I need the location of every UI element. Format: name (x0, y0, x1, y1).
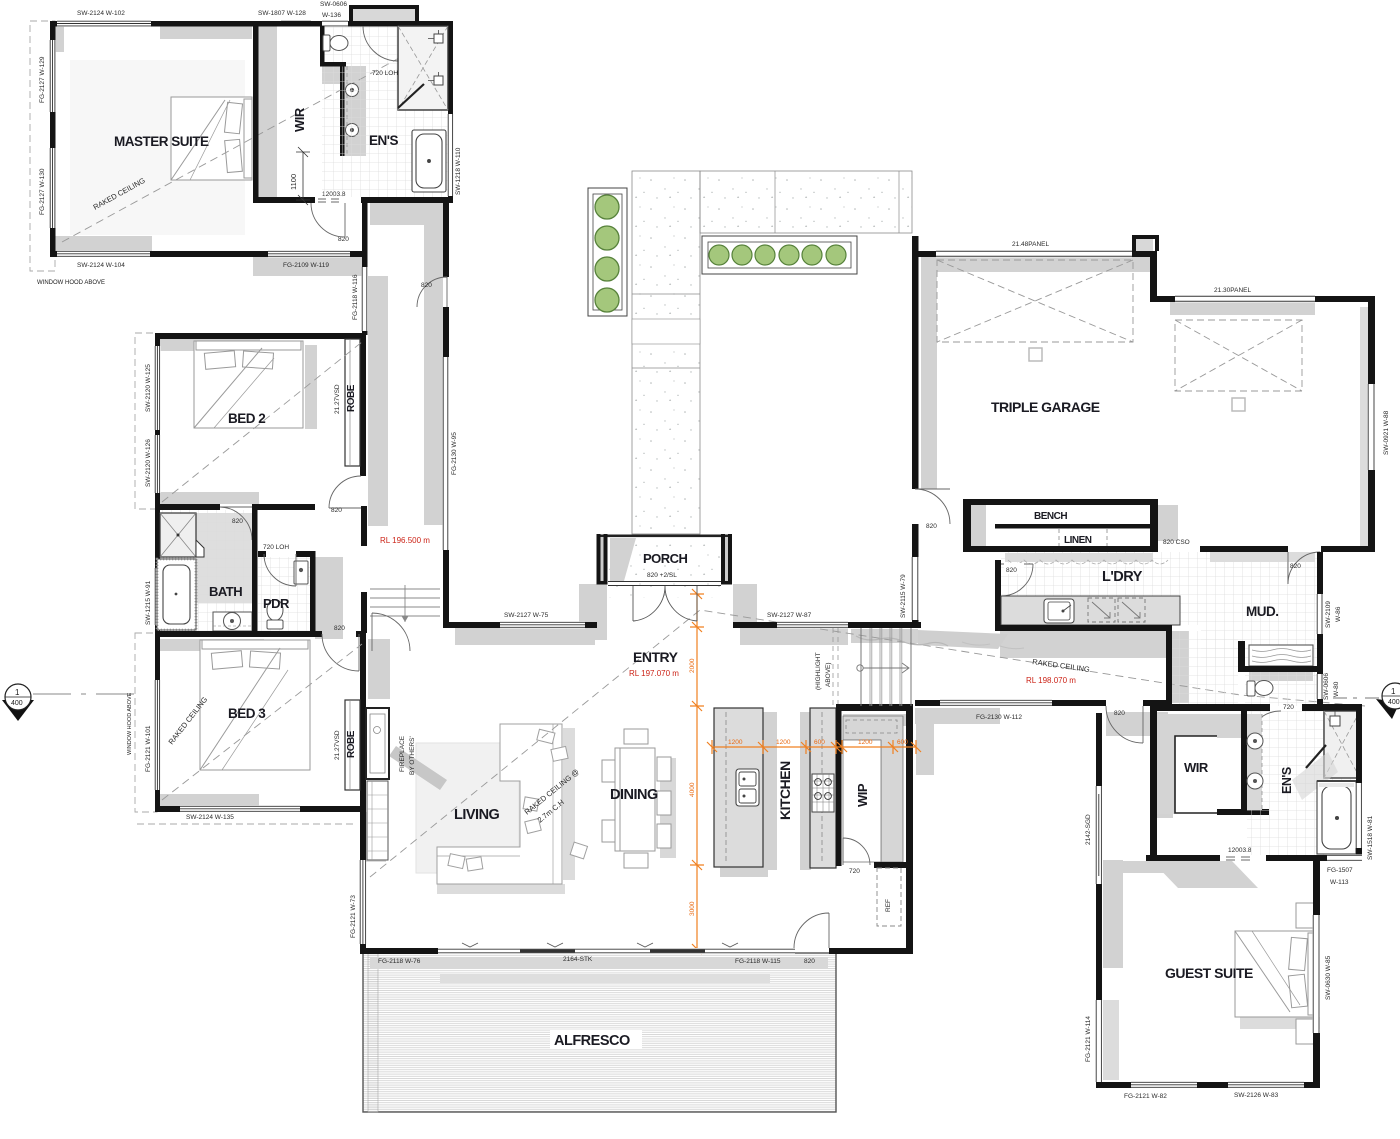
svg-text:FG-2121 W-101: FG-2121 W-101 (145, 725, 152, 772)
svg-text:820: 820 (804, 958, 815, 965)
svg-text:3000: 3000 (689, 901, 696, 916)
svg-text:FG-2130 W-112: FG-2130 W-112 (976, 714, 1022, 721)
svg-text:SW-0630 W-85: SW-0630 W-85 (1325, 955, 1332, 1000)
svg-text:21.27VSD: 21.27VSD (334, 730, 341, 760)
svg-text:FG-2118 W-76: FG-2118 W-76 (378, 958, 421, 965)
svg-text:820: 820 (926, 523, 937, 530)
svg-text:RL 196.500 m: RL 196.500 m (380, 536, 430, 545)
svg-text:SW-2124 W-102: SW-2124 W-102 (77, 10, 125, 17)
svg-text:W-86: W-86 (1335, 606, 1342, 622)
svg-text:WIR: WIR (292, 107, 307, 132)
svg-text:400: 400 (1388, 699, 1400, 706)
svg-text:BED 2: BED 2 (228, 411, 265, 426)
svg-text:720 LOH: 720 LOH (372, 70, 398, 77)
svg-text:FIREPLACE: FIREPLACE (399, 735, 406, 772)
svg-text:REF: REF (885, 899, 892, 912)
svg-text:1200: 1200 (728, 739, 743, 746)
svg-text:FG-1507: FG-1507 (1327, 867, 1353, 874)
svg-text:SW-1807 W-128: SW-1807 W-128 (258, 10, 306, 17)
svg-text:2142-SGD: 2142-SGD (1085, 814, 1092, 845)
svg-text:PDR: PDR (263, 596, 290, 611)
svg-text:720 LOH: 720 LOH (263, 544, 289, 551)
svg-text:820: 820 (334, 625, 345, 632)
svg-text:820: 820 (331, 507, 342, 514)
svg-text:LINEN: LINEN (1064, 535, 1092, 546)
svg-text:1: 1 (15, 688, 20, 697)
svg-text:W-136: W-136 (322, 12, 341, 19)
svg-text:WIR: WIR (1184, 760, 1209, 775)
svg-text:820: 820 (1006, 567, 1017, 574)
svg-text:EN'S: EN'S (1280, 767, 1294, 794)
svg-text:SW-2120 W-126: SW-2120 W-126 (145, 439, 152, 487)
svg-text:ROBE: ROBE (346, 384, 357, 412)
svg-text:GUEST SUITE: GUEST SUITE (1165, 965, 1253, 981)
svg-text:FG-2130 W-95: FG-2130 W-95 (451, 432, 458, 475)
svg-text:1100: 1100 (289, 174, 298, 190)
svg-text:WINDOW HOOD ABOVE: WINDOW HOOD ABOVE (127, 692, 133, 755)
svg-text:(HIGHLIGHT: (HIGHLIGHT (815, 652, 822, 690)
svg-text:SW-1215 W-91: SW-1215 W-91 (145, 580, 152, 625)
svg-text:MUD.: MUD. (1246, 604, 1279, 619)
svg-text:SW-0606: SW-0606 (1323, 673, 1330, 700)
svg-text:1: 1 (1391, 687, 1396, 696)
svg-text:720: 720 (1283, 704, 1294, 711)
svg-text:SW-2115 W-79: SW-2115 W-79 (900, 574, 907, 618)
svg-text:BY OTHERS': BY OTHERS' (409, 736, 416, 775)
svg-text:MASTER SUITE: MASTER SUITE (114, 134, 209, 149)
svg-text:FG-2127 W-129: FG-2127 W-129 (39, 56, 46, 103)
svg-text:FG-2118 W-115: FG-2118 W-115 (735, 958, 781, 965)
svg-text:1200: 1200 (858, 739, 873, 746)
svg-text:RL 198.070 m: RL 198.070 m (1026, 676, 1076, 685)
svg-text:RL 197.070 m: RL 197.070 m (629, 669, 679, 678)
svg-text:FG-2118 W-116: FG-2118 W-116 (352, 274, 359, 320)
svg-text:SW-0921 W-88: SW-0921 W-88 (1383, 410, 1390, 455)
svg-text:WINDOW HOOD ABOVE: WINDOW HOOD ABOVE (37, 280, 105, 286)
svg-text:DINING: DINING (610, 787, 658, 803)
svg-text:SW-2127 W-75: SW-2127 W-75 (504, 612, 549, 619)
svg-text:ENTRY: ENTRY (633, 649, 679, 665)
svg-text:820: 820 (232, 518, 243, 525)
svg-text:FG-2127 W-130: FG-2127 W-130 (39, 168, 46, 215)
svg-text:21.27VSD: 21.27VSD (334, 384, 341, 414)
svg-text:WIP: WIP (855, 783, 870, 807)
svg-text:SW-2124 W-104: SW-2124 W-104 (77, 262, 125, 269)
svg-text:ROBE: ROBE (346, 730, 357, 758)
svg-text:SW-2120 W-125: SW-2120 W-125 (145, 364, 152, 412)
svg-text:SW-2127 W-87: SW-2127 W-87 (767, 612, 812, 619)
svg-text:ABOVE): ABOVE) (825, 662, 832, 687)
svg-text:KITCHEN: KITCHEN (777, 761, 793, 820)
svg-text:FG-2121 W-82: FG-2121 W-82 (1124, 1093, 1167, 1100)
svg-text:SW-1518 W-81: SW-1518 W-81 (1367, 815, 1374, 860)
svg-text:L'DRY: L'DRY (1102, 569, 1143, 585)
svg-text:W-80: W-80 (1333, 681, 1340, 697)
svg-text:BATH: BATH (209, 584, 242, 599)
svg-text:1200: 1200 (776, 739, 791, 746)
svg-text:SW-0606: SW-0606 (320, 1, 347, 8)
svg-text:600: 600 (814, 739, 825, 746)
svg-text:600: 600 (897, 739, 908, 746)
svg-text:820 +2/SL: 820 +2/SL (647, 572, 677, 579)
svg-text:TRIPLE GARAGE: TRIPLE GARAGE (991, 399, 1100, 415)
svg-text:SW-1218 W-110: SW-1218 W-110 (455, 147, 462, 195)
svg-text:PORCH: PORCH (643, 551, 688, 566)
svg-text:400: 400 (11, 700, 23, 707)
svg-text:FG-2121 W-73: FG-2121 W-73 (350, 895, 357, 938)
svg-text:FG-2121 W-114: FG-2121 W-114 (1085, 1016, 1092, 1062)
svg-text:BED 3: BED 3 (228, 706, 266, 721)
svg-text:EN'S: EN'S (369, 133, 398, 148)
svg-text:SW-2124 W-135: SW-2124 W-135 (186, 814, 234, 821)
svg-text:21.30PANEL: 21.30PANEL (1214, 287, 1251, 294)
svg-text:SW-2126 W-83: SW-2126 W-83 (1234, 1092, 1279, 1099)
svg-text:ALFRESCO: ALFRESCO (554, 1033, 630, 1049)
svg-text:4000: 4000 (689, 782, 696, 797)
svg-text:720: 720 (849, 868, 860, 875)
svg-text:2000: 2000 (689, 658, 696, 673)
svg-text:820: 820 (1114, 710, 1125, 717)
svg-text:21.48PANEL: 21.48PANEL (1012, 241, 1049, 248)
svg-text:SW-2109: SW-2109 (1325, 601, 1332, 628)
svg-text:FG-2109 W-119: FG-2109 W-119 (283, 262, 329, 269)
svg-text:2164-STK: 2164-STK (563, 956, 593, 963)
svg-text:820: 820 (1290, 563, 1301, 570)
svg-text:820 CSO: 820 CSO (1163, 539, 1190, 546)
svg-text:BENCH: BENCH (1034, 511, 1067, 522)
svg-text:LIVING: LIVING (454, 807, 500, 823)
svg-text:W-113: W-113 (1330, 879, 1349, 886)
svg-text:820: 820 (421, 282, 432, 289)
